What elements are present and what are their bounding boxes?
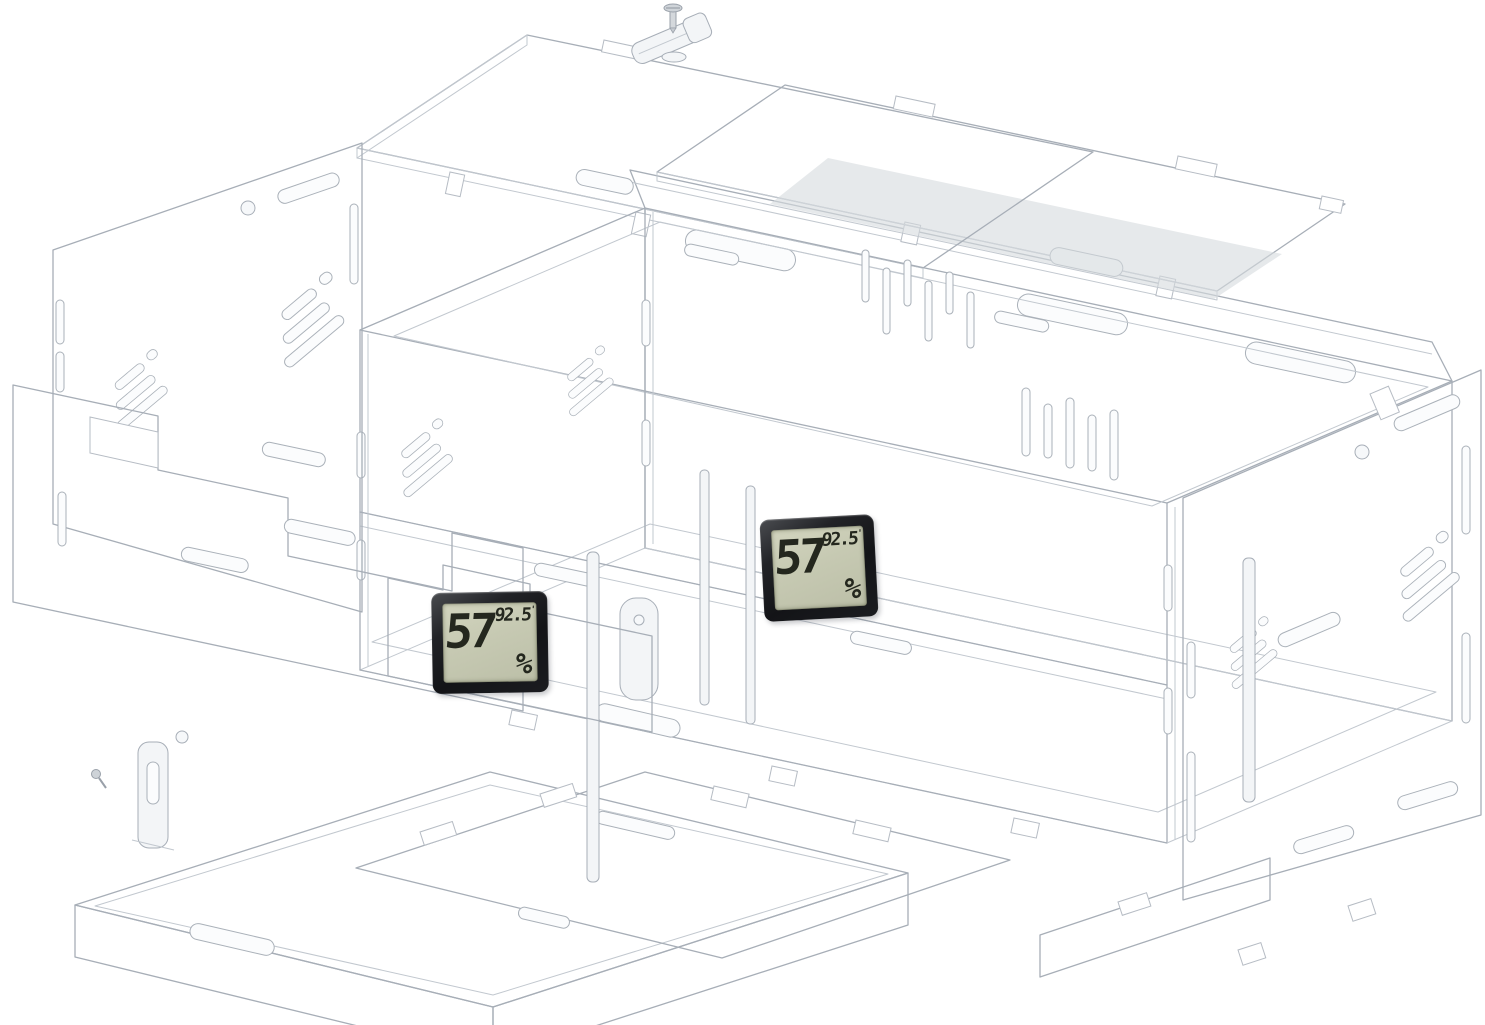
humidity-value: 57 bbox=[773, 533, 824, 583]
humidity-unit: % bbox=[514, 649, 534, 678]
box-top-vents bbox=[549, 344, 626, 417]
front-hygrometer: 57 92.5' % bbox=[431, 591, 549, 694]
degree-mark: ' bbox=[857, 529, 861, 539]
floor-divider-panel bbox=[356, 772, 1010, 958]
latch-pad bbox=[662, 52, 686, 62]
tray-screw bbox=[92, 770, 107, 789]
lower-right-strip bbox=[1040, 858, 1270, 977]
temperature-value: 92.5' bbox=[821, 530, 861, 550]
inside-hygrometer-screen: 57 92.5' % bbox=[771, 526, 867, 611]
degree-mark: ' bbox=[530, 605, 534, 615]
humidity-unit: % bbox=[843, 574, 862, 604]
right-side-panel bbox=[1183, 370, 1481, 965]
tray-screw-hole bbox=[176, 731, 188, 743]
inside-hygrometer: 57 92.5' % bbox=[759, 514, 878, 622]
humidity-value: 57 bbox=[443, 608, 496, 656]
box-left-vents bbox=[380, 417, 466, 498]
main-box-frame bbox=[357, 208, 1452, 843]
left-side-panel bbox=[53, 143, 362, 612]
door-glue-tab bbox=[90, 417, 158, 468]
temperature-value: 92.5' bbox=[494, 606, 534, 625]
front-hygrometer-screen: 57 92.5' % bbox=[442, 602, 537, 683]
hinge-pin bbox=[594, 702, 682, 739]
exploded-diagram bbox=[0, 0, 1485, 1025]
right-divider-strip bbox=[1243, 558, 1255, 802]
product-image-stage: 57 92.5' % 57 92.5' % bbox=[0, 0, 1485, 1025]
tray-latch bbox=[132, 742, 174, 850]
